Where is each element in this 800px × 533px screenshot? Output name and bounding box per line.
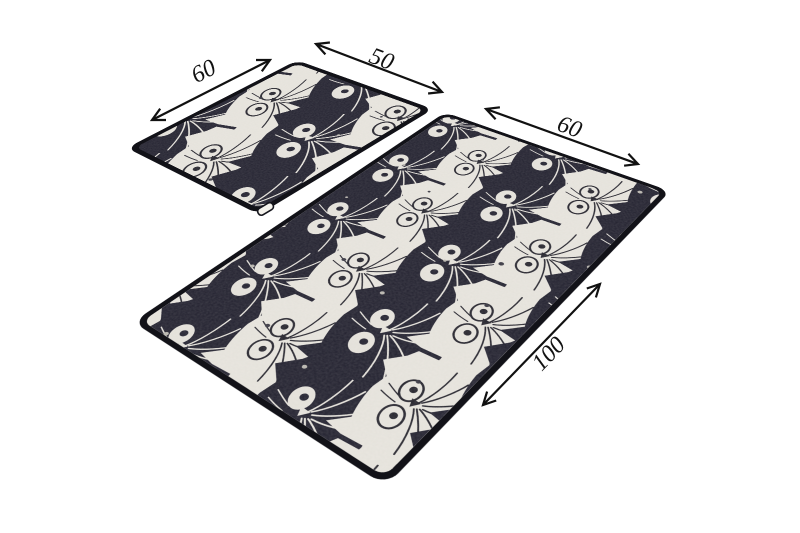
- svg-text:50: 50: [366, 43, 398, 76]
- svg-text:60: 60: [554, 111, 585, 144]
- svg-text:100: 100: [527, 332, 571, 376]
- svg-text:60: 60: [187, 55, 220, 89]
